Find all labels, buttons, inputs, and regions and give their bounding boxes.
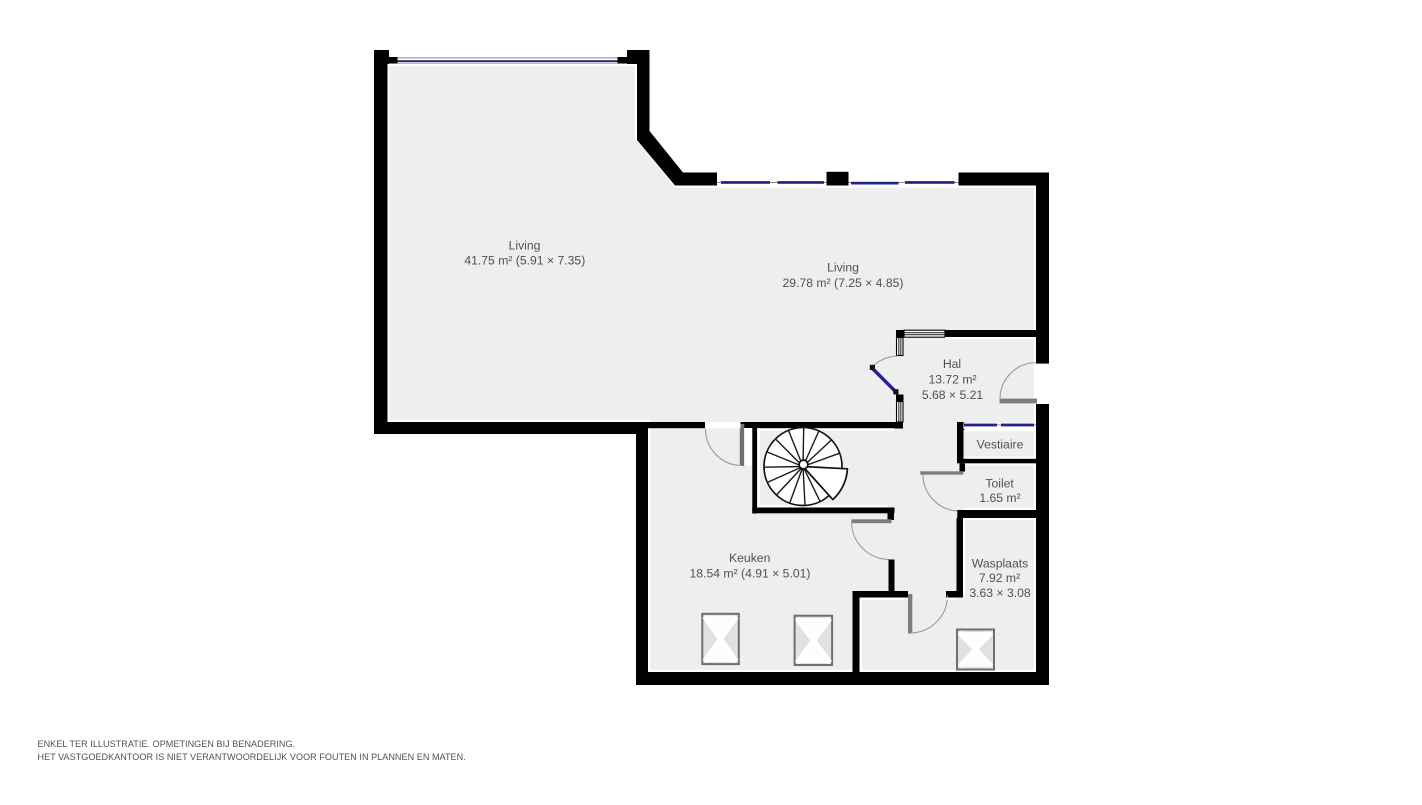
svg-text:41.75 m² (5.91 × 7.35): 41.75 m² (5.91 × 7.35) bbox=[464, 254, 585, 268]
svg-text:3.63 × 3.08: 3.63 × 3.08 bbox=[969, 586, 1031, 600]
svg-text:18.54 m² (4.91 × 5.01): 18.54 m² (4.91 × 5.01) bbox=[690, 567, 811, 581]
svg-text:Wasplaats: Wasplaats bbox=[972, 557, 1028, 571]
svg-text:7.92 m²: 7.92 m² bbox=[979, 571, 1020, 585]
svg-text:Living: Living bbox=[827, 261, 859, 275]
svg-text:Keuken: Keuken bbox=[729, 551, 770, 565]
svg-text:5.68 × 5.21: 5.68 × 5.21 bbox=[922, 388, 984, 402]
svg-text:Living: Living bbox=[509, 239, 541, 253]
svg-text:Hal: Hal bbox=[943, 357, 961, 371]
svg-text:29.78 m² (7.25 × 4.85): 29.78 m² (7.25 × 4.85) bbox=[783, 276, 904, 290]
svg-text:Vestiaire: Vestiaire bbox=[977, 438, 1024, 452]
svg-text:1.65 m²: 1.65 m² bbox=[979, 491, 1020, 505]
svg-text:HET VASTGOEDKANTOOR IS NIET VE: HET VASTGOEDKANTOOR IS NIET VERANTWOORDE… bbox=[38, 752, 466, 762]
svg-text:Toilet: Toilet bbox=[985, 477, 1014, 491]
svg-text:13.72 m²: 13.72 m² bbox=[928, 373, 976, 387]
svg-text:ENKEL TER ILLUSTRATIE. OPMETIN: ENKEL TER ILLUSTRATIE. OPMETINGEN BIJ BE… bbox=[38, 739, 296, 749]
